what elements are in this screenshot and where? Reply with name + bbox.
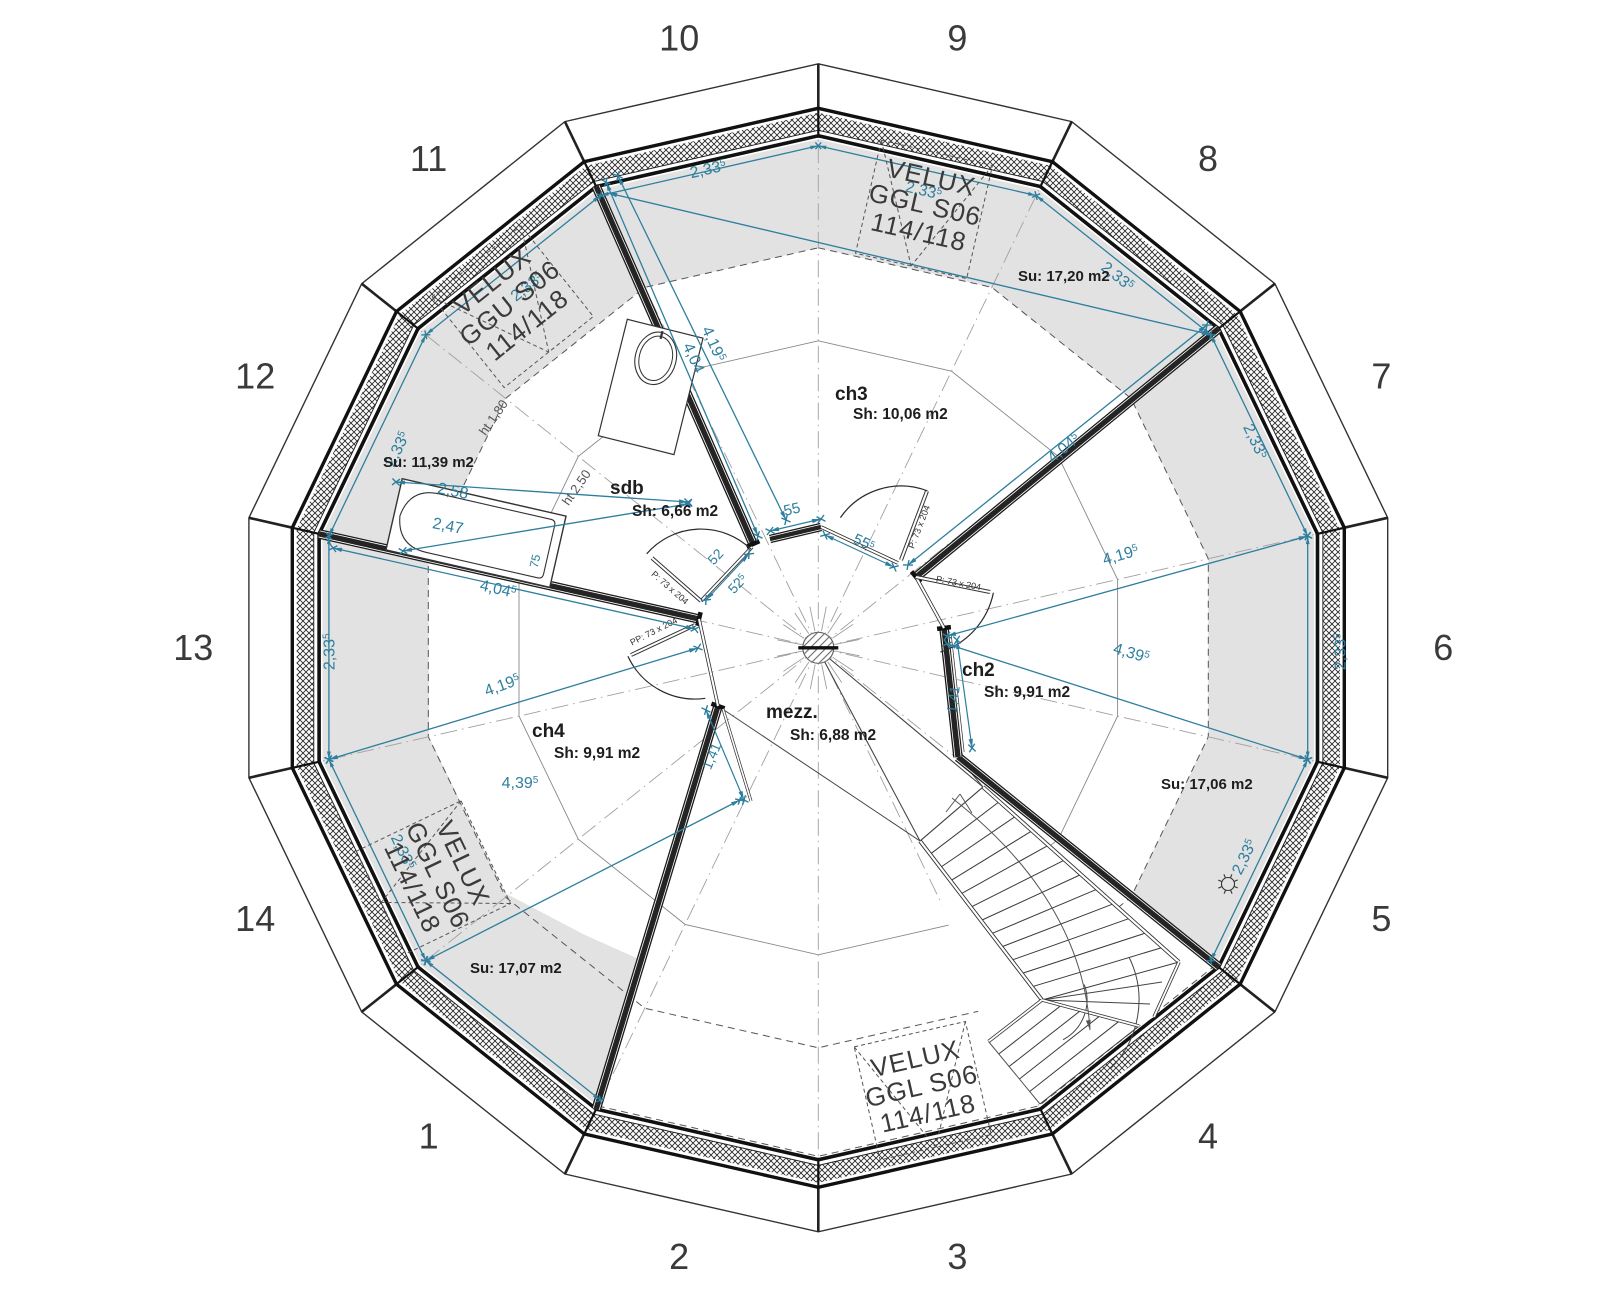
svg-text:12: 12 <box>235 356 275 397</box>
svg-text:10: 10 <box>659 18 699 59</box>
svg-text:Sh: 10,06 m2: Sh: 10,06 m2 <box>853 406 948 423</box>
svg-text:Sh: 6,66 m2: Sh: 6,66 m2 <box>632 503 718 520</box>
svg-text:mezz.: mezz. <box>766 702 818 723</box>
svg-text:Su: 17,06 m2: Su: 17,06 m2 <box>1161 776 1253 793</box>
svg-text:8: 8 <box>1198 138 1218 179</box>
svg-text:ch2: ch2 <box>962 660 995 681</box>
svg-text:ch3: ch3 <box>835 384 868 405</box>
svg-text:5: 5 <box>1371 898 1391 939</box>
svg-text:11: 11 <box>410 138 447 179</box>
svg-text:3: 3 <box>947 1236 967 1277</box>
svg-text:1: 1 <box>419 1116 439 1157</box>
svg-text:Sh: 6,88 m2: Sh: 6,88 m2 <box>790 727 876 744</box>
svg-text:sdb: sdb <box>610 478 644 499</box>
svg-text:Su: 17,07 m2: Su: 17,07 m2 <box>470 960 562 977</box>
svg-text:2: 2 <box>669 1236 689 1277</box>
svg-text:6: 6 <box>1433 627 1453 668</box>
svg-text:Sh: 9,91 m2: Sh: 9,91 m2 <box>984 684 1070 701</box>
svg-text:ch4: ch4 <box>532 721 565 742</box>
svg-text:13: 13 <box>173 627 213 668</box>
svg-text:Su: 11,39 m2: Su: 11,39 m2 <box>383 454 474 471</box>
svg-text:Su: 17,20 m2: Su: 17,20 m2 <box>1018 268 1110 285</box>
svg-text:9: 9 <box>947 18 967 59</box>
svg-text:14: 14 <box>235 898 275 939</box>
svg-text:Sh: 9,91 m2: Sh: 9,91 m2 <box>554 745 640 762</box>
svg-text:4: 4 <box>1198 1116 1218 1157</box>
svg-text:7: 7 <box>1371 356 1391 397</box>
